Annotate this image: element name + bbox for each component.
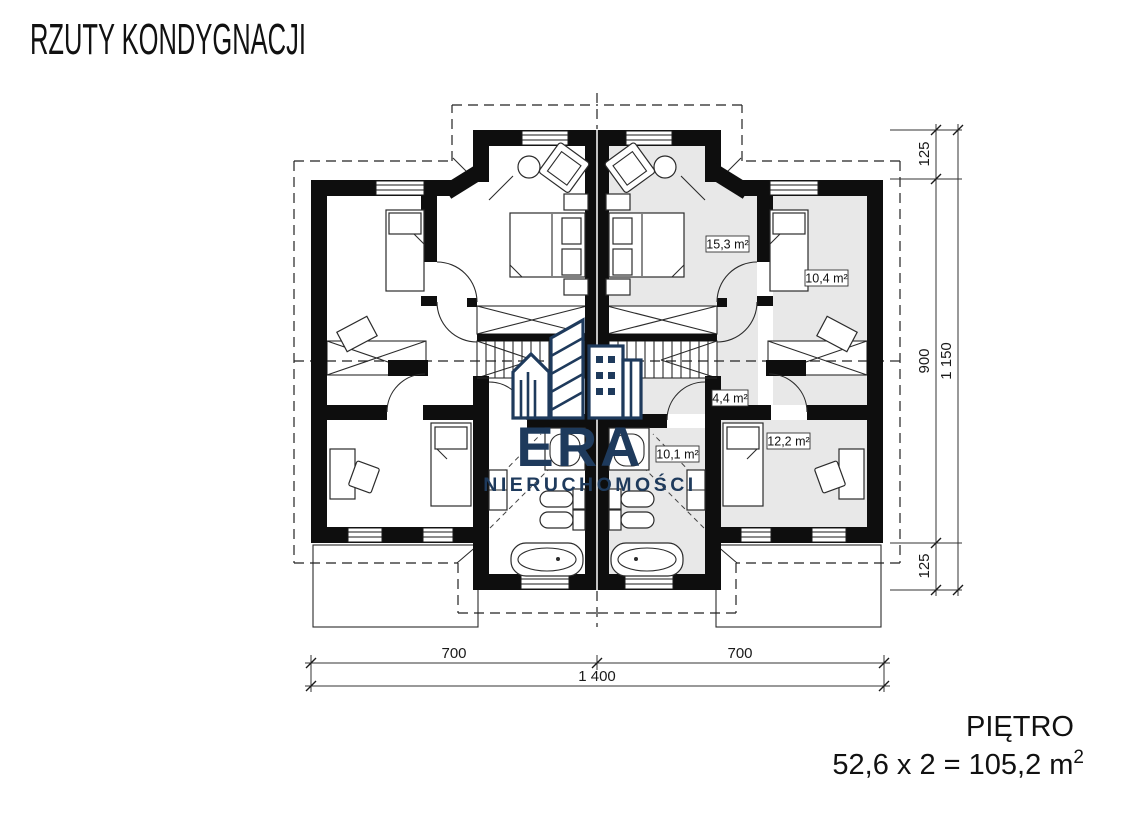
svg-text:10,1 m²: 10,1 m² [656,448,698,462]
dim-1400-total: 1 400 [578,668,616,685]
lower-roof-outline [313,545,478,627]
dim-700-left: 700 [441,645,466,662]
dim-1150-total: 1 150 [938,342,955,380]
dim-125-top: 125 [916,141,933,166]
nightstand [564,194,588,210]
era-logo-text: ERA [516,415,643,478]
master-bedroom-furniture [510,142,590,295]
side-table [518,156,540,178]
svg-text:12,2 m²: 12,2 m² [767,435,809,449]
floor-plan-page: ERA NIERUCHOMOŚCI 15,3 m² 10,4 m² 4,4 m²… [0,0,1137,815]
floor-plan-drawing: ERA NIERUCHOMOŚCI 15,3 m² 10,4 m² 4,4 m²… [0,0,1137,815]
page-title: RZUTY KONDYGNACJI [30,14,306,64]
area-label: 10,4 m² [805,270,848,286]
area-superscript: 2 [1073,747,1084,768]
toilet [540,510,585,530]
bedroom-bottom-furniture [330,423,471,506]
armchair [538,142,590,194]
dimension-right: 125 900 125 1 150 [890,124,963,596]
dimension-bottom: 700 700 1 400 [305,645,890,692]
bedroom-top-furniture [337,210,424,352]
floor-area-label: 52,6 x 2 = 105,2 m2 [832,747,1084,781]
window-bottom-2 [423,528,453,542]
window-top-bedroom [376,181,424,195]
nightstand [564,279,588,295]
area-label: 12,2 m² [767,433,810,449]
floor-name-label: PIĘTRO [966,711,1074,743]
desk [330,449,355,499]
dim-125-bottom: 125 [916,553,933,578]
svg-text:15,3 m²: 15,3 m² [706,238,748,252]
window-bathroom [521,575,569,589]
svg-text:10,4 m²: 10,4 m² [805,272,847,286]
dim-900-mid: 900 [916,348,933,373]
window-bottom-1 [348,528,382,542]
svg-text:4,4 m²: 4,4 m² [712,392,747,406]
area-label: 4,4 m² [712,390,748,406]
area-label: 10,1 m² [656,446,699,462]
area-label: 15,3 m² [706,236,749,252]
dim-700-right: 700 [727,645,752,662]
era-logo-subtitle: NIERUCHOMOŚCI [483,472,696,496]
bathtub [511,543,583,576]
